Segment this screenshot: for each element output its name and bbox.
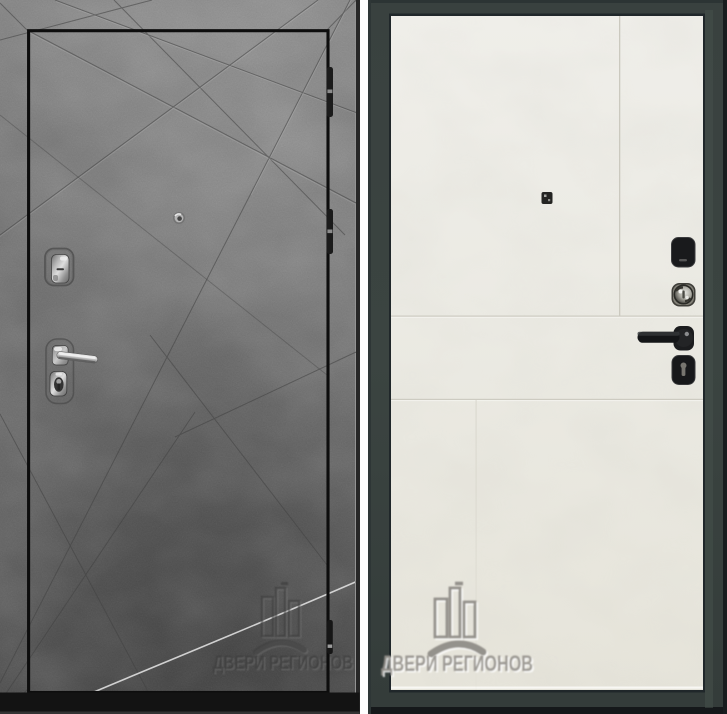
- svg-text:ДВЕРИ РЕГИОНОВ: ДВЕРИ РЕГИОНОВ: [213, 653, 353, 674]
- svg-text:ДВЕРИ РЕГИОНОВ: ДВЕРИ РЕГИОНОВ: [381, 651, 533, 676]
